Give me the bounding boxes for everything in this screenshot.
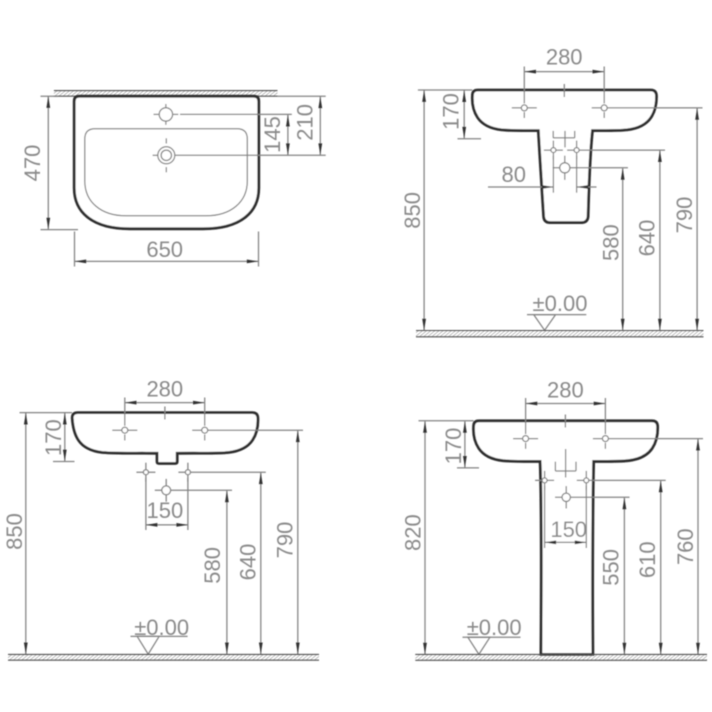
svg-text:640: 640 — [634, 220, 659, 257]
svg-text:210: 210 — [293, 104, 318, 141]
svg-text:±0.00: ±0.00 — [467, 615, 522, 640]
svg-text:760: 760 — [673, 528, 698, 565]
svg-text:170: 170 — [439, 93, 464, 130]
svg-text:580: 580 — [200, 547, 225, 584]
svg-text:550: 550 — [599, 549, 624, 586]
svg-text:640: 640 — [236, 544, 261, 581]
svg-text:850: 850 — [400, 192, 425, 229]
svg-text:470: 470 — [20, 145, 45, 182]
svg-text:170: 170 — [441, 428, 466, 465]
svg-text:80: 80 — [501, 162, 525, 187]
svg-text:145: 145 — [260, 116, 285, 153]
svg-text:790: 790 — [273, 522, 298, 559]
svg-text:820: 820 — [401, 514, 426, 551]
svg-text:150: 150 — [550, 517, 587, 542]
svg-text:610: 610 — [635, 541, 660, 578]
svg-text:280: 280 — [146, 377, 183, 402]
svg-text:790: 790 — [672, 197, 697, 234]
svg-text:850: 850 — [2, 513, 27, 550]
svg-text:650: 650 — [146, 237, 183, 262]
svg-text:280: 280 — [546, 45, 583, 70]
svg-text:150: 150 — [147, 498, 184, 523]
svg-text:±0.00: ±0.00 — [533, 291, 588, 316]
svg-text:170: 170 — [41, 419, 66, 456]
svg-text:580: 580 — [598, 224, 623, 261]
svg-text:280: 280 — [547, 378, 584, 403]
